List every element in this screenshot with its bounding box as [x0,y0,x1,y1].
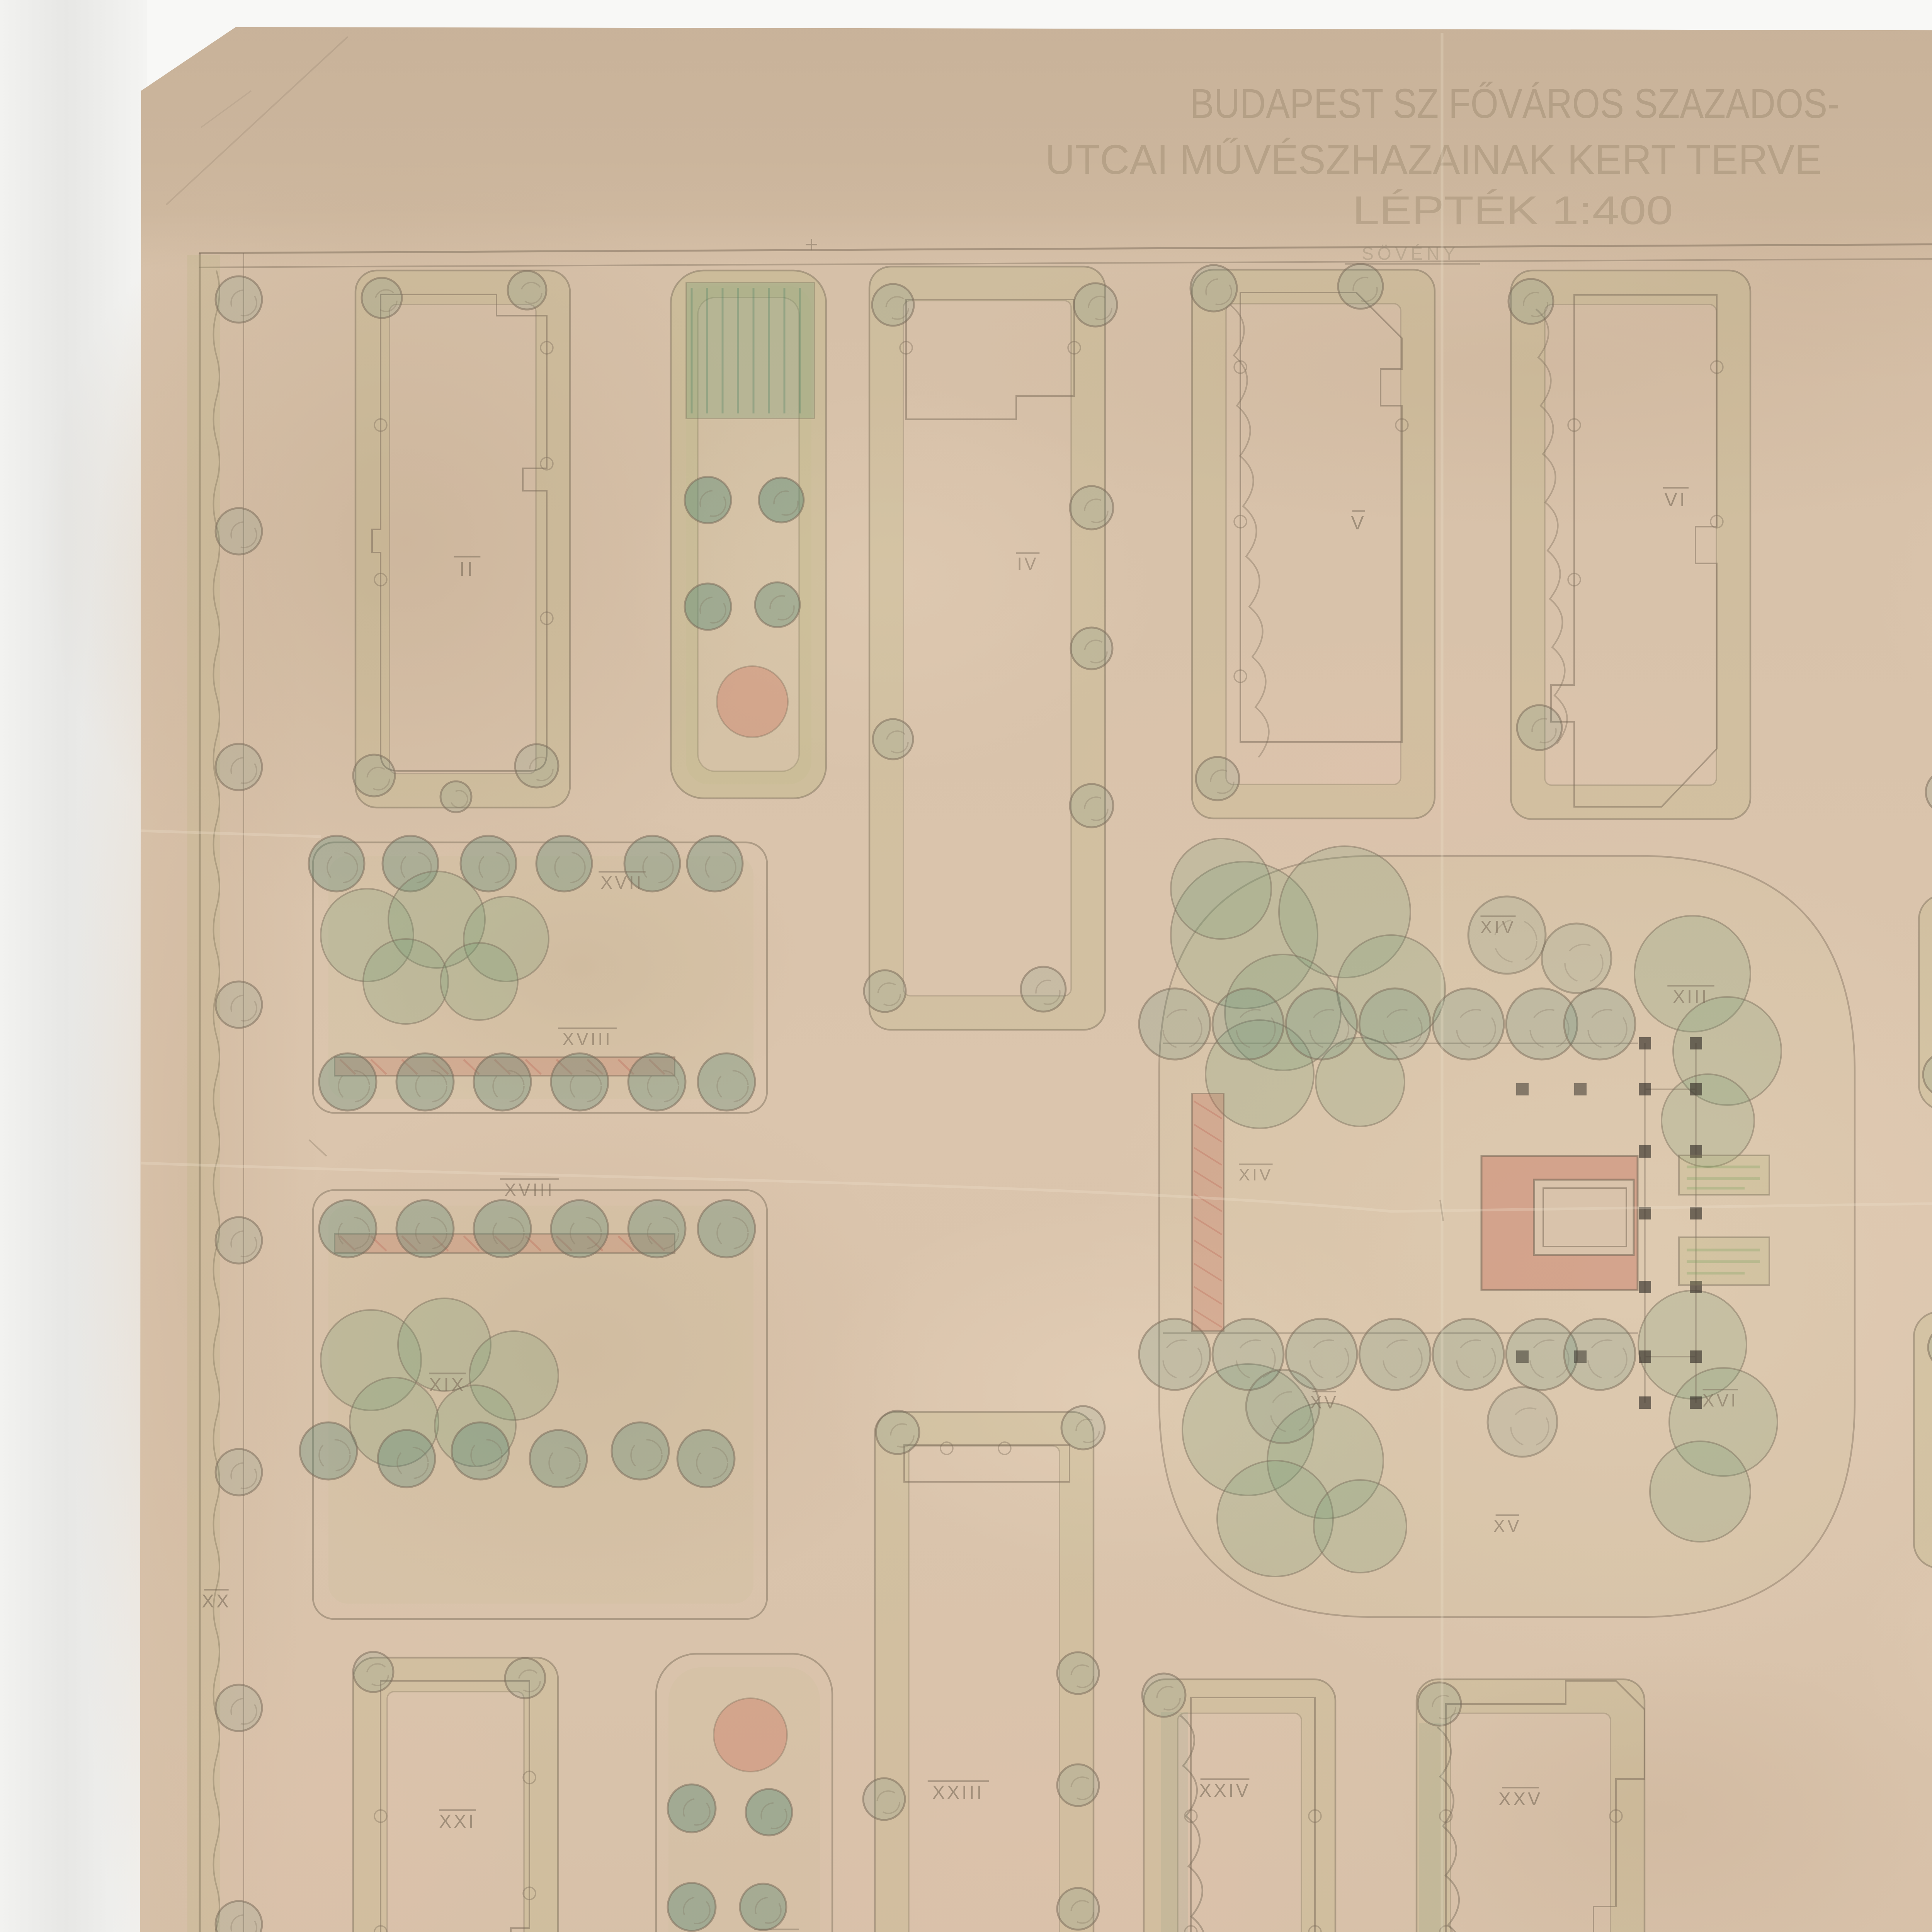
svg-text:UTCAI MŰVÉSZHAZAINAK KERT TERV: UTCAI MŰVÉSZHAZAINAK KERT TERVE [1045,136,1822,183]
svg-text:XXIV: XXIV [1199,1781,1250,1801]
svg-text:LÉPTÉK 1:400: LÉPTÉK 1:400 [1352,188,1673,233]
svg-text:XXII: XXII [756,1930,797,1932]
svg-text:VI: VI [1664,489,1687,510]
svg-text:XIX: XIX [429,1375,466,1395]
svg-text:XV: XV [1310,1392,1338,1412]
svg-text:II: II [459,558,475,580]
svg-text:XXIII: XXIII [932,1782,984,1803]
svg-text:XVIII: XVIII [504,1180,554,1200]
svg-text:SÖVÉNY: SÖVÉNY [1362,243,1459,264]
svg-text:XVII: XVII [601,872,644,893]
svg-text:IV: IV [1017,554,1038,574]
svg-text:XV: XV [1493,1516,1521,1536]
svg-text:XVIII: XVIII [562,1029,612,1049]
svg-text:XVI: XVI [1702,1390,1738,1410]
svg-text:XXI: XXI [439,1811,476,1832]
svg-text:XXV: XXV [1498,1789,1543,1810]
svg-text:XX: XX [202,1591,231,1612]
svg-text:XIV: XIV [1239,1165,1273,1184]
svg-text:V: V [1351,512,1366,534]
svg-text:BUDAPEST SZ FŐVÁROS SZAZADOS-: BUDAPEST SZ FŐVÁROS SZAZADOS- [1190,80,1839,127]
svg-text:XIII: XIII [1673,986,1709,1007]
svg-text:XIV: XIV [1480,917,1516,937]
